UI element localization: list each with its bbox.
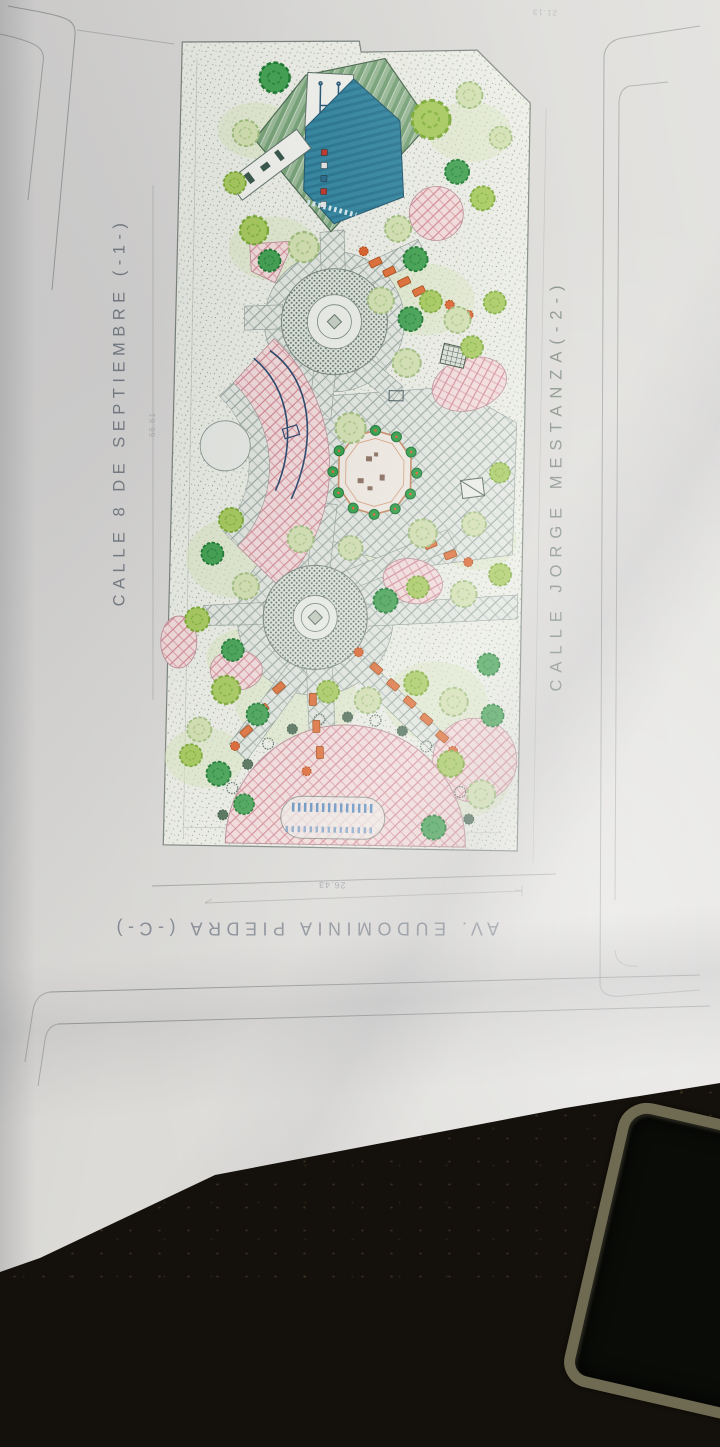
north-plaza xyxy=(280,268,388,376)
dimension-top-right: 21.13 xyxy=(532,7,557,17)
dimension-left-height: 66.61 xyxy=(148,412,157,437)
street-label-left: CALLE 8 DE SEPTIEMBRE (-1-) xyxy=(111,218,130,607)
site-plan-drawing xyxy=(0,0,720,1110)
south-plaza xyxy=(262,565,368,671)
street-label-bottom: AV. EUDOMINIA PIEDRA (-C-) xyxy=(111,918,499,939)
dimension-bottom-width: 26.43 xyxy=(318,880,346,890)
paper-sheet: CALLE 8 DE SEPTIEMBRE (-1-) CALLE JORGE … xyxy=(0,0,720,1280)
photo-scene: { "scene": { "description": "Photograph … xyxy=(0,0,720,1280)
park-plan xyxy=(157,38,547,863)
street-label-right: CALLE JORGE MESTANZA(-2-) xyxy=(548,278,567,691)
